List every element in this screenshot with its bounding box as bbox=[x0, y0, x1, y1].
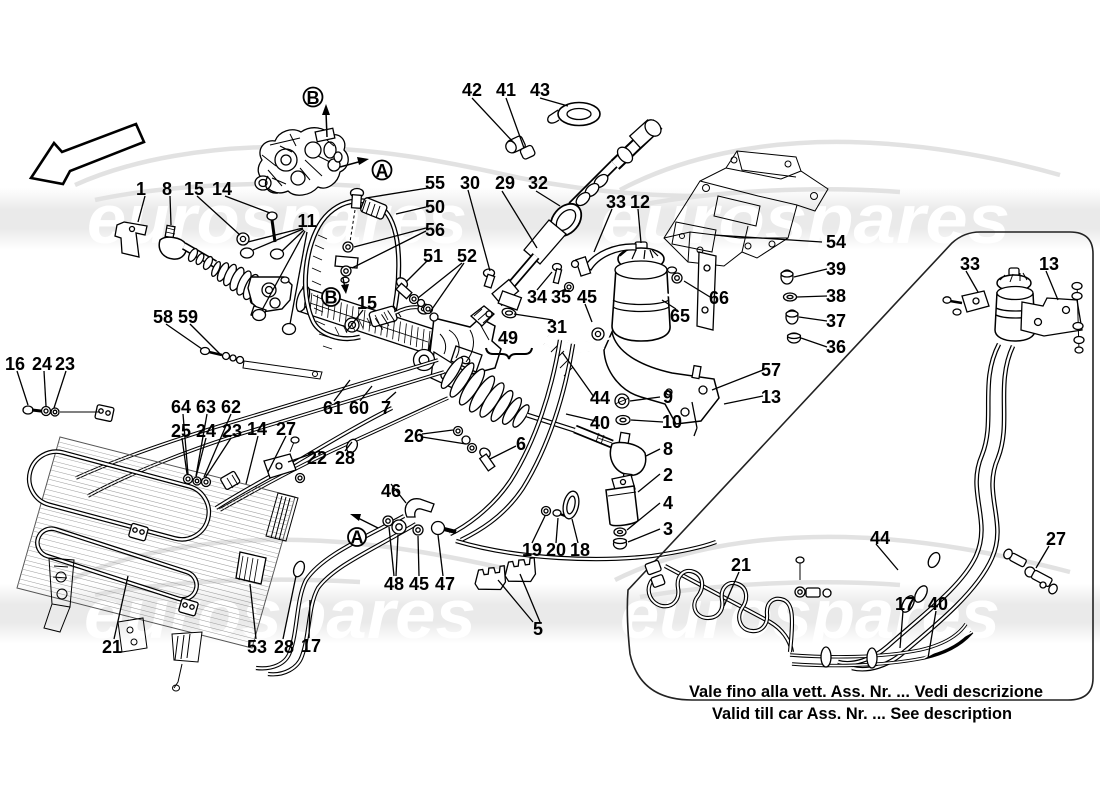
svg-text:43: 43 bbox=[530, 80, 550, 100]
svg-text:41: 41 bbox=[496, 80, 516, 100]
svg-text:26: 26 bbox=[404, 426, 424, 446]
svg-text:21: 21 bbox=[731, 555, 751, 575]
svg-text:66: 66 bbox=[709, 288, 729, 308]
svg-text:B: B bbox=[325, 288, 338, 308]
svg-text:44: 44 bbox=[590, 388, 610, 408]
svg-text:34: 34 bbox=[527, 287, 547, 307]
svg-text:62: 62 bbox=[221, 397, 241, 417]
svg-text:27: 27 bbox=[276, 419, 296, 439]
svg-text:15: 15 bbox=[184, 179, 204, 199]
svg-text:33: 33 bbox=[960, 254, 980, 274]
svg-text:5: 5 bbox=[533, 619, 543, 639]
svg-text:A: A bbox=[351, 528, 364, 548]
svg-text:52: 52 bbox=[457, 246, 477, 266]
svg-text:30: 30 bbox=[460, 173, 480, 193]
svg-text:61: 61 bbox=[323, 398, 343, 418]
svg-text:38: 38 bbox=[826, 286, 846, 306]
svg-text:51: 51 bbox=[423, 246, 443, 266]
svg-text:13: 13 bbox=[761, 387, 781, 407]
svg-text:18: 18 bbox=[570, 540, 590, 560]
svg-text:20: 20 bbox=[546, 540, 566, 560]
svg-text:64: 64 bbox=[171, 397, 191, 417]
svg-text:4: 4 bbox=[663, 493, 673, 513]
svg-text:14: 14 bbox=[212, 179, 232, 199]
svg-text:27: 27 bbox=[1046, 529, 1066, 549]
svg-text:35: 35 bbox=[551, 287, 571, 307]
svg-text:54: 54 bbox=[826, 232, 846, 252]
svg-text:17: 17 bbox=[895, 594, 915, 614]
svg-text:9: 9 bbox=[663, 387, 673, 407]
svg-text:42: 42 bbox=[462, 80, 482, 100]
svg-text:14: 14 bbox=[247, 419, 267, 439]
svg-text:28: 28 bbox=[274, 637, 294, 657]
svg-text:B: B bbox=[307, 88, 320, 108]
svg-text:10: 10 bbox=[662, 412, 682, 432]
svg-text:19: 19 bbox=[522, 540, 542, 560]
svg-text:23: 23 bbox=[55, 354, 75, 374]
svg-text:56: 56 bbox=[425, 220, 445, 240]
svg-text:31: 31 bbox=[547, 317, 567, 337]
svg-text:40: 40 bbox=[590, 413, 610, 433]
svg-text:22: 22 bbox=[307, 448, 327, 468]
svg-text:48: 48 bbox=[384, 574, 404, 594]
svg-text:21: 21 bbox=[102, 637, 122, 657]
svg-text:37: 37 bbox=[826, 311, 846, 331]
svg-text:32: 32 bbox=[528, 173, 548, 193]
svg-text:12: 12 bbox=[630, 192, 650, 212]
svg-text:24: 24 bbox=[196, 421, 216, 441]
svg-text:29: 29 bbox=[495, 173, 515, 193]
svg-text:13: 13 bbox=[1039, 254, 1059, 274]
svg-text:49: 49 bbox=[498, 328, 518, 348]
svg-text:7: 7 bbox=[381, 398, 391, 418]
svg-text:47: 47 bbox=[435, 574, 455, 594]
svg-text:45: 45 bbox=[577, 287, 597, 307]
svg-text:57: 57 bbox=[761, 360, 781, 380]
svg-text:59: 59 bbox=[178, 307, 198, 327]
svg-text:65: 65 bbox=[670, 306, 690, 326]
svg-text:A: A bbox=[376, 161, 389, 181]
svg-text:1: 1 bbox=[136, 179, 146, 199]
svg-text:11: 11 bbox=[297, 211, 316, 231]
svg-text:8: 8 bbox=[162, 179, 172, 199]
svg-text:16: 16 bbox=[5, 354, 25, 374]
svg-text:44: 44 bbox=[870, 528, 890, 548]
svg-text:25: 25 bbox=[171, 421, 191, 441]
svg-text:28: 28 bbox=[335, 448, 355, 468]
svg-text:36: 36 bbox=[826, 337, 846, 357]
svg-text:3: 3 bbox=[663, 519, 673, 539]
svg-text:24: 24 bbox=[32, 354, 52, 374]
svg-text:Vale fino alla vett. Ass. Nr.: Vale fino alla vett. Ass. Nr. ... Vedi d… bbox=[689, 683, 1043, 701]
svg-text:58: 58 bbox=[153, 307, 173, 327]
svg-text:55: 55 bbox=[425, 173, 445, 193]
svg-text:40: 40 bbox=[928, 594, 948, 614]
svg-text:6: 6 bbox=[516, 434, 526, 454]
svg-text:46: 46 bbox=[381, 481, 401, 501]
svg-text:23: 23 bbox=[222, 421, 242, 441]
svg-text:63: 63 bbox=[196, 397, 216, 417]
svg-text:17: 17 bbox=[301, 636, 321, 656]
svg-text:45: 45 bbox=[409, 574, 429, 594]
svg-text:15: 15 bbox=[357, 293, 377, 313]
svg-text:Valid till car Ass. Nr. ... Se: Valid till car Ass. Nr. ... See descript… bbox=[712, 705, 1012, 723]
svg-text:50: 50 bbox=[425, 197, 445, 217]
svg-text:33: 33 bbox=[606, 192, 626, 212]
svg-text:2: 2 bbox=[663, 465, 673, 485]
svg-text:60: 60 bbox=[349, 398, 369, 418]
svg-text:53: 53 bbox=[247, 637, 267, 657]
svg-text:39: 39 bbox=[826, 259, 846, 279]
svg-text:8: 8 bbox=[663, 439, 673, 459]
